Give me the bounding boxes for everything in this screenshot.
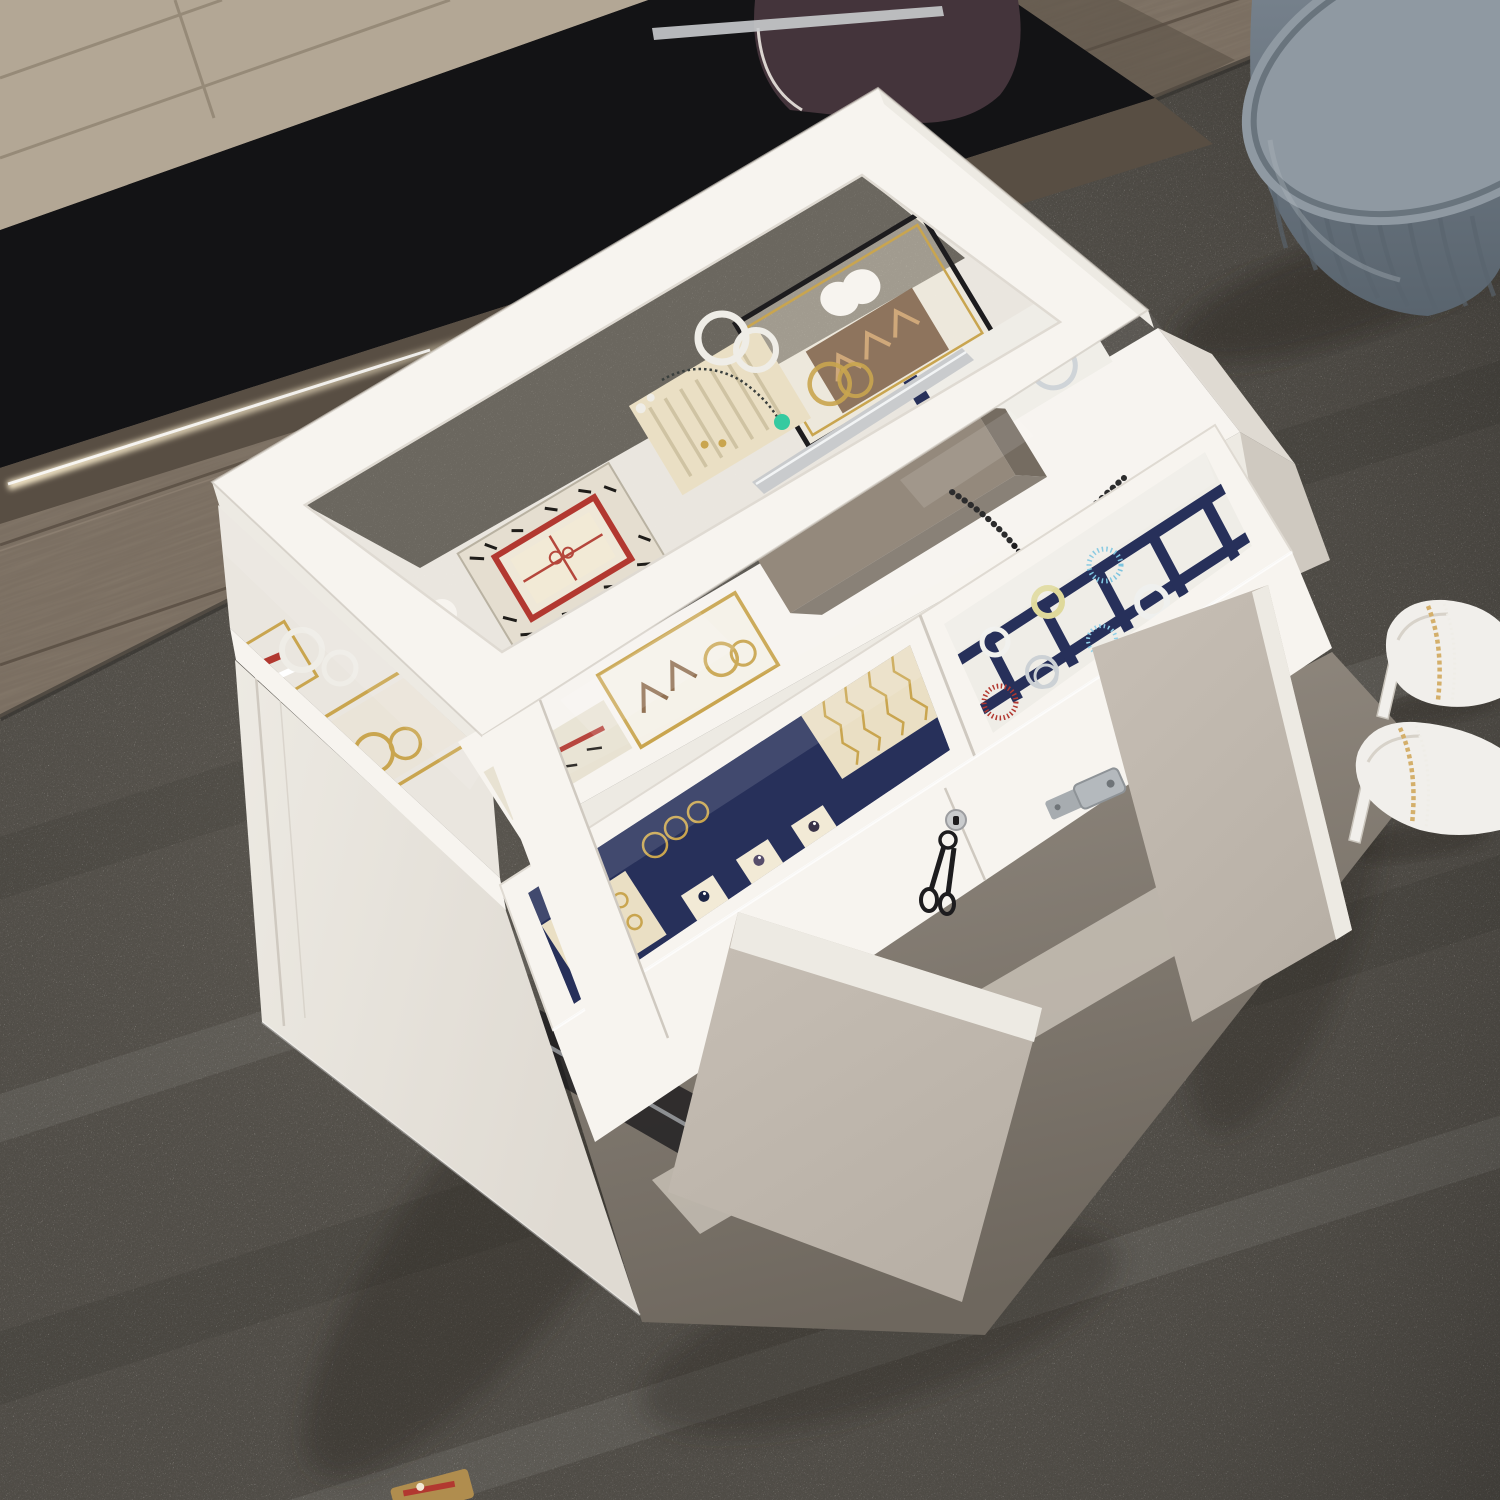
green-pendant [774,414,790,430]
scene [0,0,1500,1500]
keyhole [953,816,959,825]
scene-canvas [0,0,1500,1500]
